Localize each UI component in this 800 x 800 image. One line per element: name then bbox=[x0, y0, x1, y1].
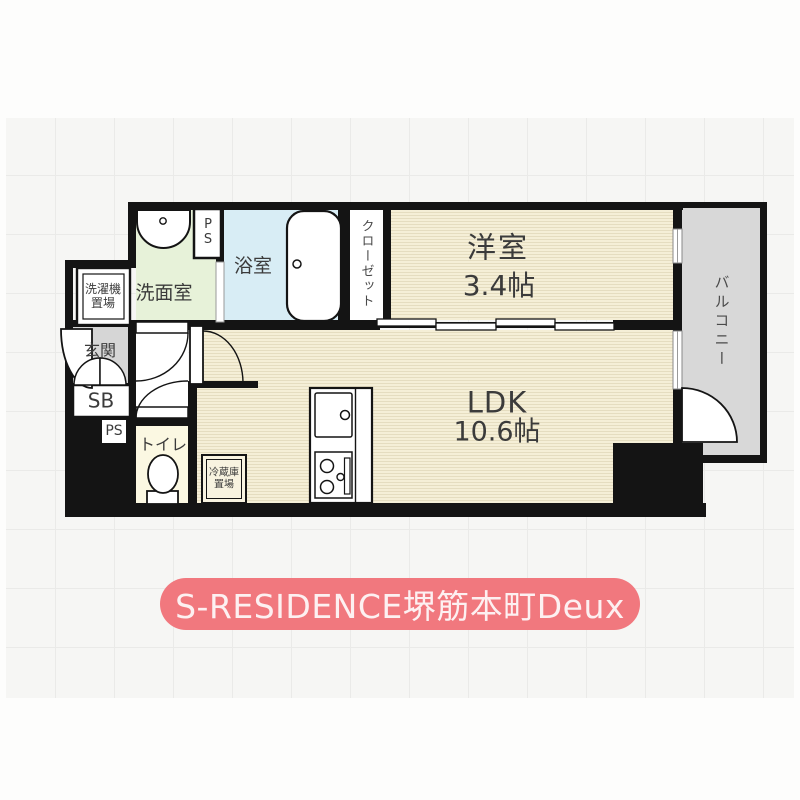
corner-block bbox=[613, 443, 703, 512]
label-shoe-box: SB bbox=[88, 390, 114, 413]
label-balcony: バルコニー bbox=[712, 275, 733, 370]
washroom-door-icon bbox=[136, 322, 188, 381]
toilet-icon bbox=[147, 455, 178, 504]
label-bathroom: 浴室 bbox=[234, 256, 272, 278]
label-washroom: 洗面室 bbox=[135, 283, 192, 305]
label-western-room: 洋室 bbox=[467, 231, 529, 264]
label-fridge-area: 冷蔵庫置場 bbox=[208, 468, 240, 491]
label-entrance: 玄関 bbox=[84, 342, 116, 360]
label-ldk-size: 10.6帖 bbox=[453, 416, 540, 447]
label-closet: クローゼット bbox=[357, 219, 376, 309]
toilet-door-icon bbox=[136, 381, 188, 418]
bathtub-icon bbox=[287, 211, 341, 321]
plan-linework bbox=[0, 0, 800, 800]
label-western-room-size: 3.4帖 bbox=[463, 270, 536, 302]
kitchen-counter-icon bbox=[310, 388, 372, 503]
label-ldk: LDK bbox=[467, 386, 528, 419]
balcony-door-icon bbox=[682, 388, 737, 442]
sliding-door-icon bbox=[377, 319, 614, 330]
sink-icon bbox=[137, 210, 190, 248]
label-pipe-space-top: PS bbox=[201, 218, 215, 248]
bath-door-icon bbox=[216, 262, 224, 322]
ldk-door-icon bbox=[190, 326, 243, 384]
floor-plan-page: 洗面室 PS 浴室 クローゼット 洋室 3.4帖 バルコニー LDK 10.6帖… bbox=[0, 0, 800, 800]
label-pipe-space-bottom: PS bbox=[105, 423, 122, 439]
label-toilet: トイレ bbox=[139, 436, 187, 454]
property-name: S-RESIDENCE堺筋本町Deux bbox=[175, 580, 625, 628]
label-laundry-area: 洗濯機置場 bbox=[84, 283, 122, 311]
property-name-banner: S-RESIDENCE堺筋本町Deux bbox=[160, 578, 640, 630]
